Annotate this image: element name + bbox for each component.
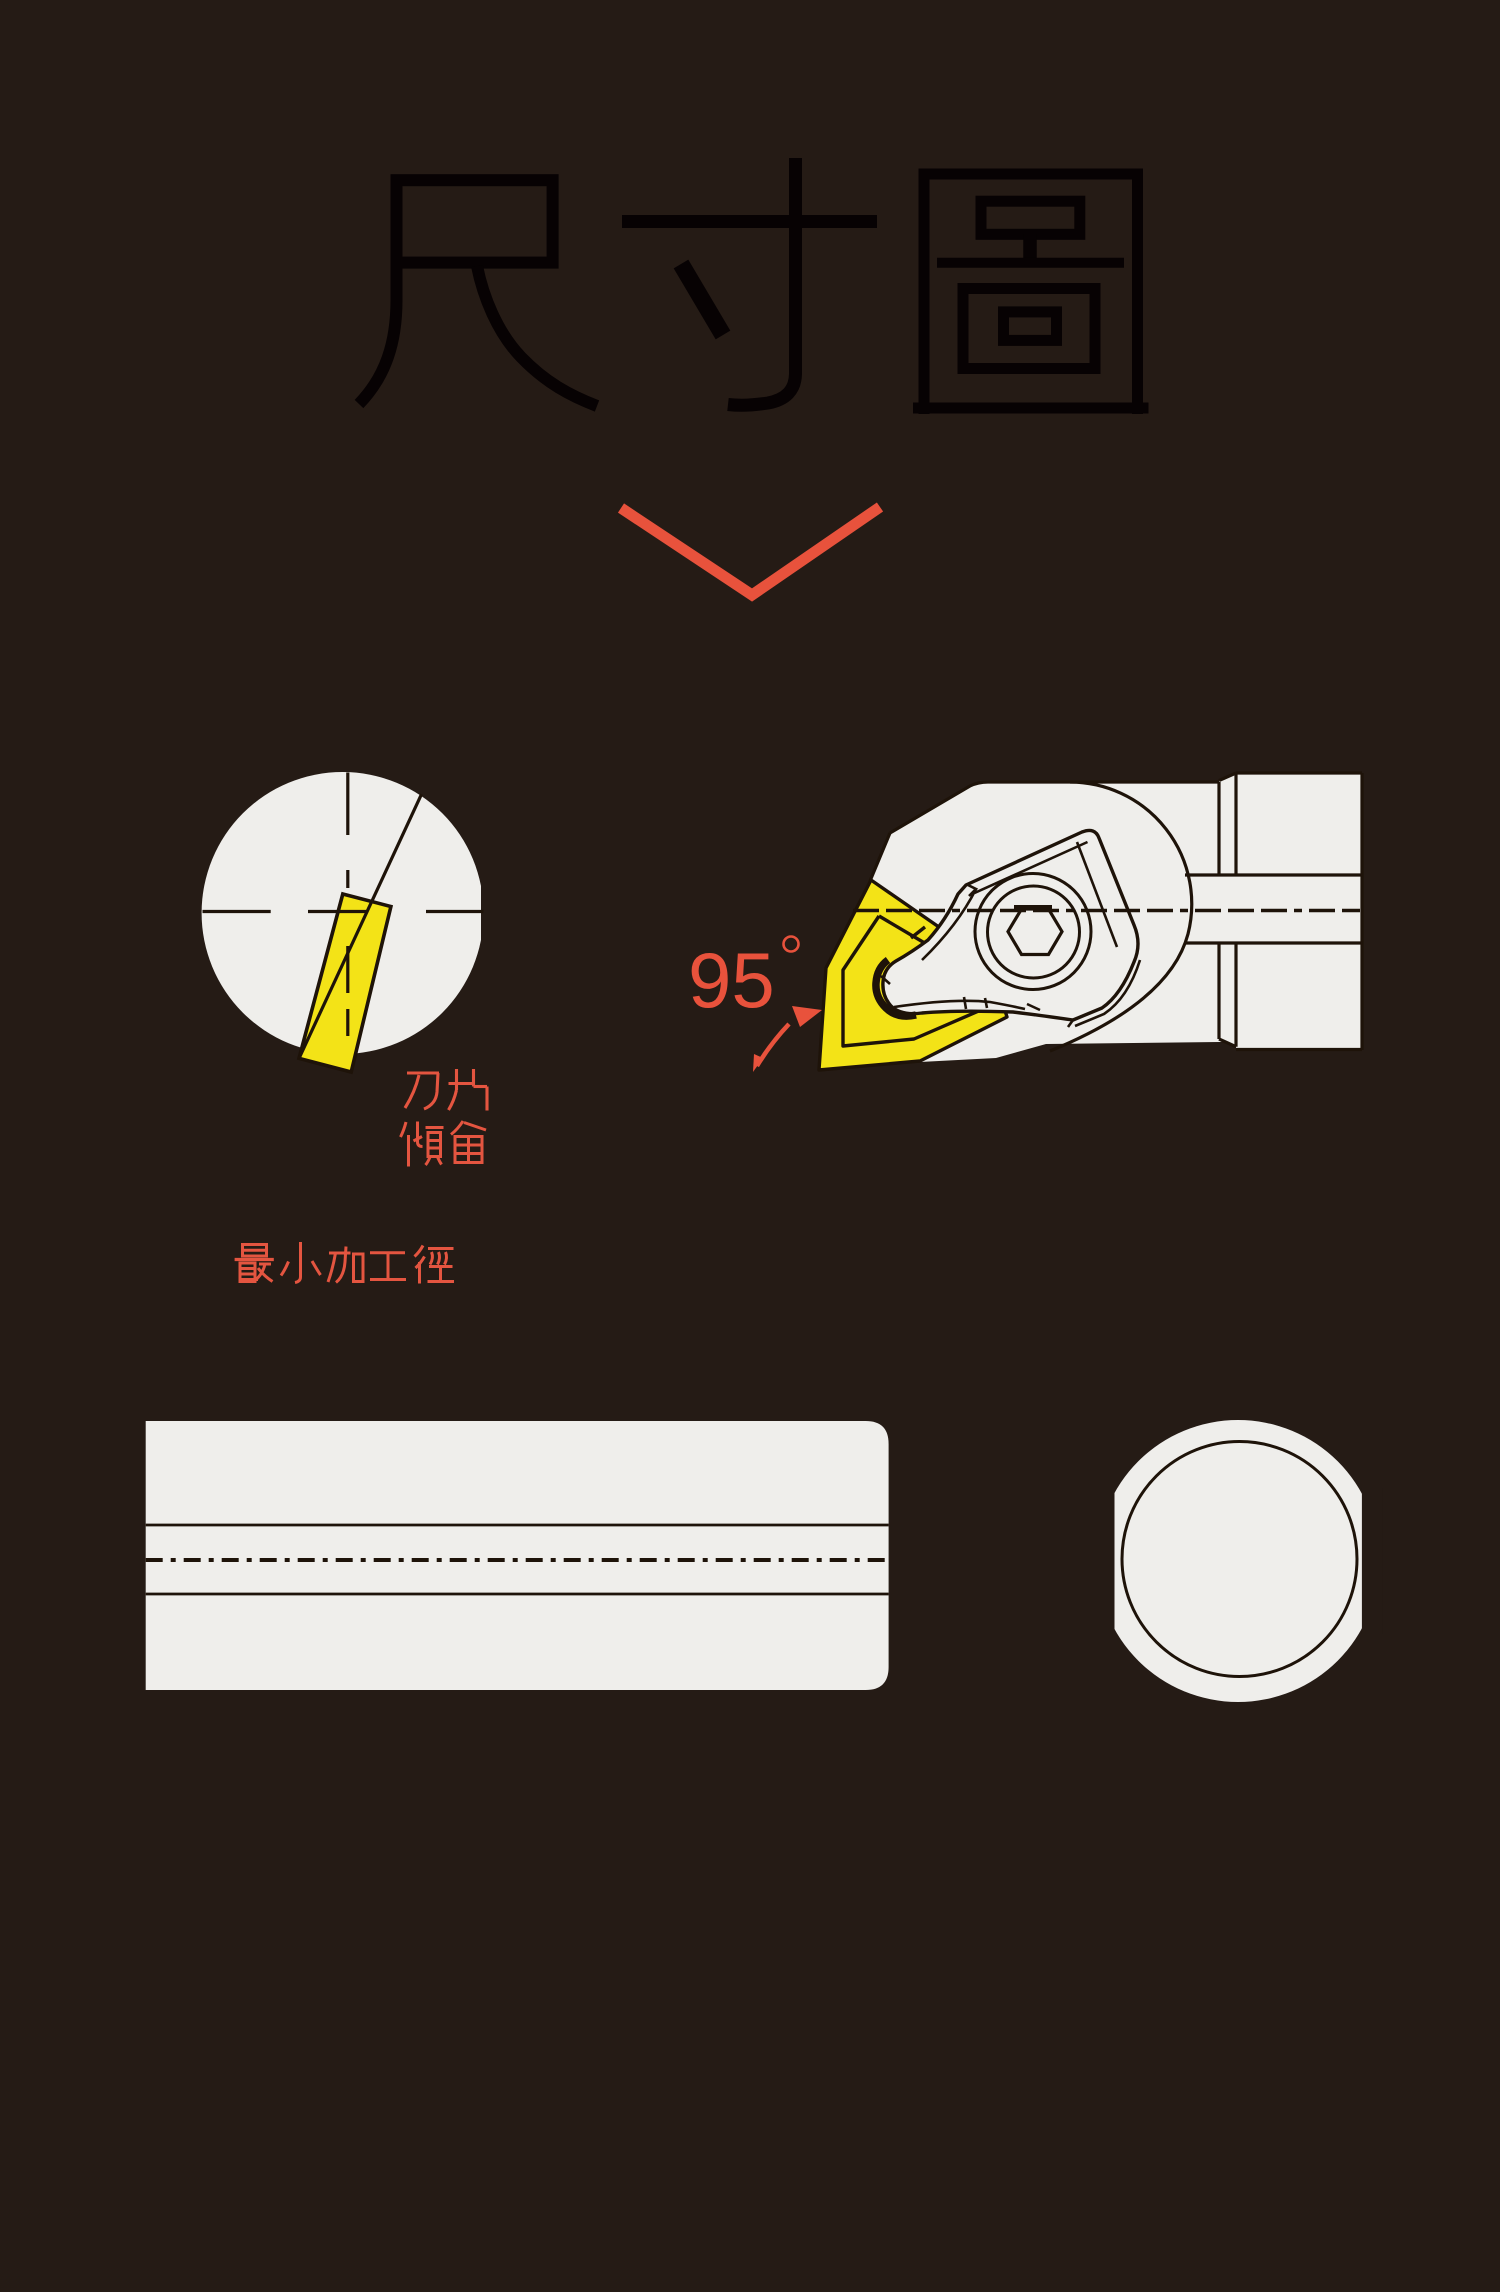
- svg-text:95: 95: [688, 936, 775, 1024]
